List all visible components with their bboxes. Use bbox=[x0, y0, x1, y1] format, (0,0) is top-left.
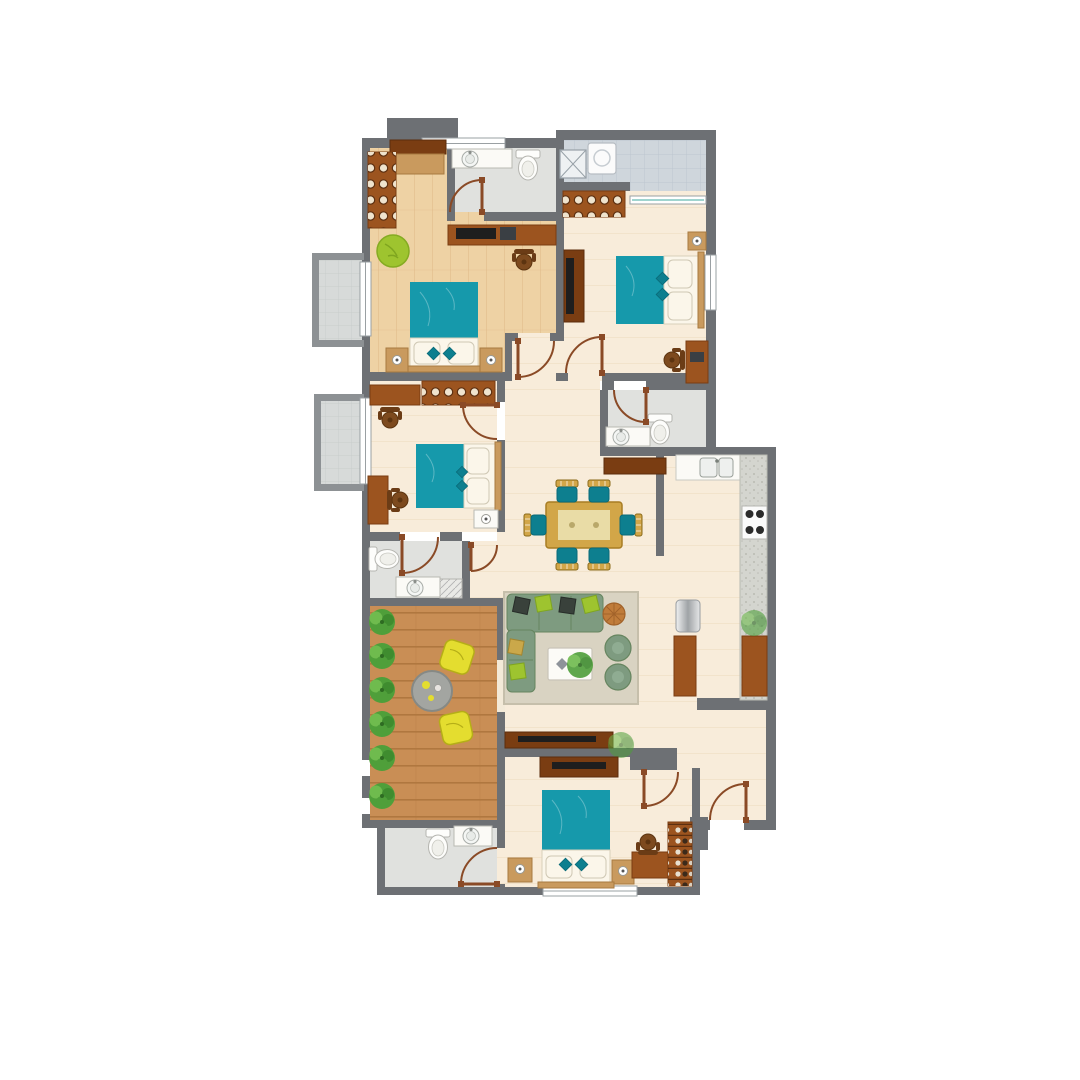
railing-gap bbox=[362, 760, 370, 776]
balcony-1-floor bbox=[319, 260, 362, 340]
wall-segment bbox=[484, 212, 564, 221]
burner-icon bbox=[756, 510, 764, 518]
terrace-table bbox=[412, 671, 452, 711]
wall-segment bbox=[602, 381, 614, 390]
sofa-pillow bbox=[582, 595, 600, 613]
wall-segment bbox=[766, 698, 776, 830]
tv bbox=[552, 762, 606, 769]
armchair-cushion bbox=[612, 642, 624, 654]
plant-icon bbox=[369, 643, 395, 669]
balcony-parapet bbox=[312, 340, 364, 347]
wall-segment bbox=[377, 887, 505, 895]
bookshelf-items bbox=[668, 822, 692, 886]
hall-floor bbox=[505, 381, 600, 447]
balcony-parapet bbox=[312, 253, 319, 347]
bed-blanket bbox=[542, 790, 610, 854]
floor-plan bbox=[0, 0, 1080, 1080]
bed-pillow bbox=[467, 448, 489, 474]
monitor-icon bbox=[690, 352, 704, 362]
sink-bowl bbox=[719, 458, 733, 477]
desk bbox=[368, 476, 388, 524]
wall-segment bbox=[556, 130, 716, 140]
burner-icon bbox=[746, 526, 754, 534]
wardrobe-hangers bbox=[563, 191, 625, 217]
passage-floor bbox=[470, 541, 497, 598]
sink-bowl bbox=[700, 458, 717, 477]
closet-top bbox=[390, 140, 446, 154]
table-item bbox=[428, 695, 434, 701]
sofa-pillow bbox=[559, 597, 576, 614]
wall-segment bbox=[497, 381, 505, 402]
wall-segment bbox=[362, 598, 505, 606]
balcony-parapet bbox=[314, 484, 364, 491]
dining-chair bbox=[588, 480, 610, 502]
dining-chair bbox=[556, 548, 578, 570]
wall-segment bbox=[497, 712, 505, 820]
plant-icon bbox=[369, 677, 395, 703]
desk bbox=[370, 385, 420, 405]
dining-chair bbox=[556, 480, 578, 502]
wall-segment bbox=[362, 532, 400, 541]
dining-chair bbox=[588, 548, 610, 570]
tv bbox=[566, 258, 574, 314]
bed-footboard bbox=[408, 366, 480, 372]
plant-icon bbox=[369, 711, 395, 737]
wall-segment bbox=[564, 182, 630, 191]
bed-pillow bbox=[668, 292, 692, 320]
lamp-icon bbox=[516, 865, 525, 874]
plant-icon bbox=[741, 610, 767, 636]
wall-segment bbox=[362, 372, 512, 381]
burner-icon bbox=[756, 526, 764, 534]
armchair-cushion bbox=[612, 671, 624, 683]
refrigerator bbox=[676, 600, 700, 632]
wall-segment bbox=[447, 212, 455, 221]
plant-icon bbox=[369, 609, 395, 635]
plant-icon bbox=[369, 745, 395, 771]
plant-icon bbox=[567, 652, 593, 678]
table-item bbox=[422, 681, 430, 689]
desk bbox=[632, 852, 668, 878]
wall-segment bbox=[630, 748, 677, 770]
wall-segment bbox=[462, 541, 470, 598]
plant-icon bbox=[369, 783, 395, 809]
sofa-pillow bbox=[535, 595, 552, 612]
balcony-parapet bbox=[312, 253, 364, 260]
dining-chair bbox=[620, 514, 642, 536]
vanity-counter bbox=[452, 149, 512, 168]
wall-segment bbox=[377, 820, 385, 895]
dining-chair bbox=[524, 514, 546, 536]
lamp-icon bbox=[393, 356, 402, 365]
wall-segment bbox=[692, 768, 700, 895]
tv bbox=[518, 736, 596, 742]
balcony-parapet bbox=[314, 394, 321, 491]
wall-segment bbox=[550, 333, 558, 341]
monitor-icon bbox=[500, 227, 516, 240]
wash-basin bbox=[462, 151, 478, 167]
sofa-pillow bbox=[512, 597, 530, 615]
cabinet bbox=[674, 636, 696, 696]
balcony-2-floor bbox=[321, 401, 362, 484]
lamp-icon bbox=[487, 356, 496, 365]
balcony-parapet bbox=[314, 394, 364, 401]
sofa-pillow bbox=[508, 639, 524, 655]
sideboard bbox=[604, 458, 666, 474]
wash-basin bbox=[407, 580, 423, 596]
table-setting bbox=[593, 522, 599, 528]
cabinet bbox=[742, 636, 767, 696]
lamp-icon bbox=[693, 237, 702, 246]
shower-tray bbox=[440, 579, 462, 598]
bed-blanket bbox=[410, 282, 478, 340]
wall-segment bbox=[556, 373, 568, 381]
wall-segment bbox=[440, 532, 462, 541]
burner-icon bbox=[746, 510, 754, 518]
bed-pillow bbox=[467, 478, 489, 504]
bed-headboard bbox=[495, 442, 501, 510]
wash-basin bbox=[463, 828, 479, 844]
table-item bbox=[435, 685, 442, 692]
wardrobe-hangers bbox=[368, 152, 396, 228]
floor-plan-canvas bbox=[0, 0, 1080, 1080]
living-area bbox=[504, 592, 638, 758]
plant-icon bbox=[608, 732, 634, 758]
stove bbox=[742, 506, 767, 539]
table-setting bbox=[569, 522, 575, 528]
sofa-pillow bbox=[509, 663, 526, 680]
lamp-icon bbox=[619, 867, 628, 876]
washing-machine bbox=[588, 143, 616, 174]
table-runner bbox=[558, 510, 610, 540]
bed-headboard bbox=[538, 882, 614, 888]
wardrobe-hangers bbox=[422, 381, 495, 405]
wash-basin bbox=[613, 429, 629, 445]
terrace-chair bbox=[438, 710, 474, 746]
railing-gap bbox=[362, 798, 370, 814]
tv-on-desk bbox=[456, 228, 496, 239]
wall-segment bbox=[387, 118, 458, 140]
kitchen-passage-floor bbox=[656, 556, 668, 700]
bed-pillow bbox=[668, 260, 692, 288]
lamp-icon bbox=[482, 515, 491, 524]
faucet-icon bbox=[715, 459, 719, 463]
closet-door bbox=[394, 154, 444, 174]
bed-headboard bbox=[698, 252, 704, 328]
